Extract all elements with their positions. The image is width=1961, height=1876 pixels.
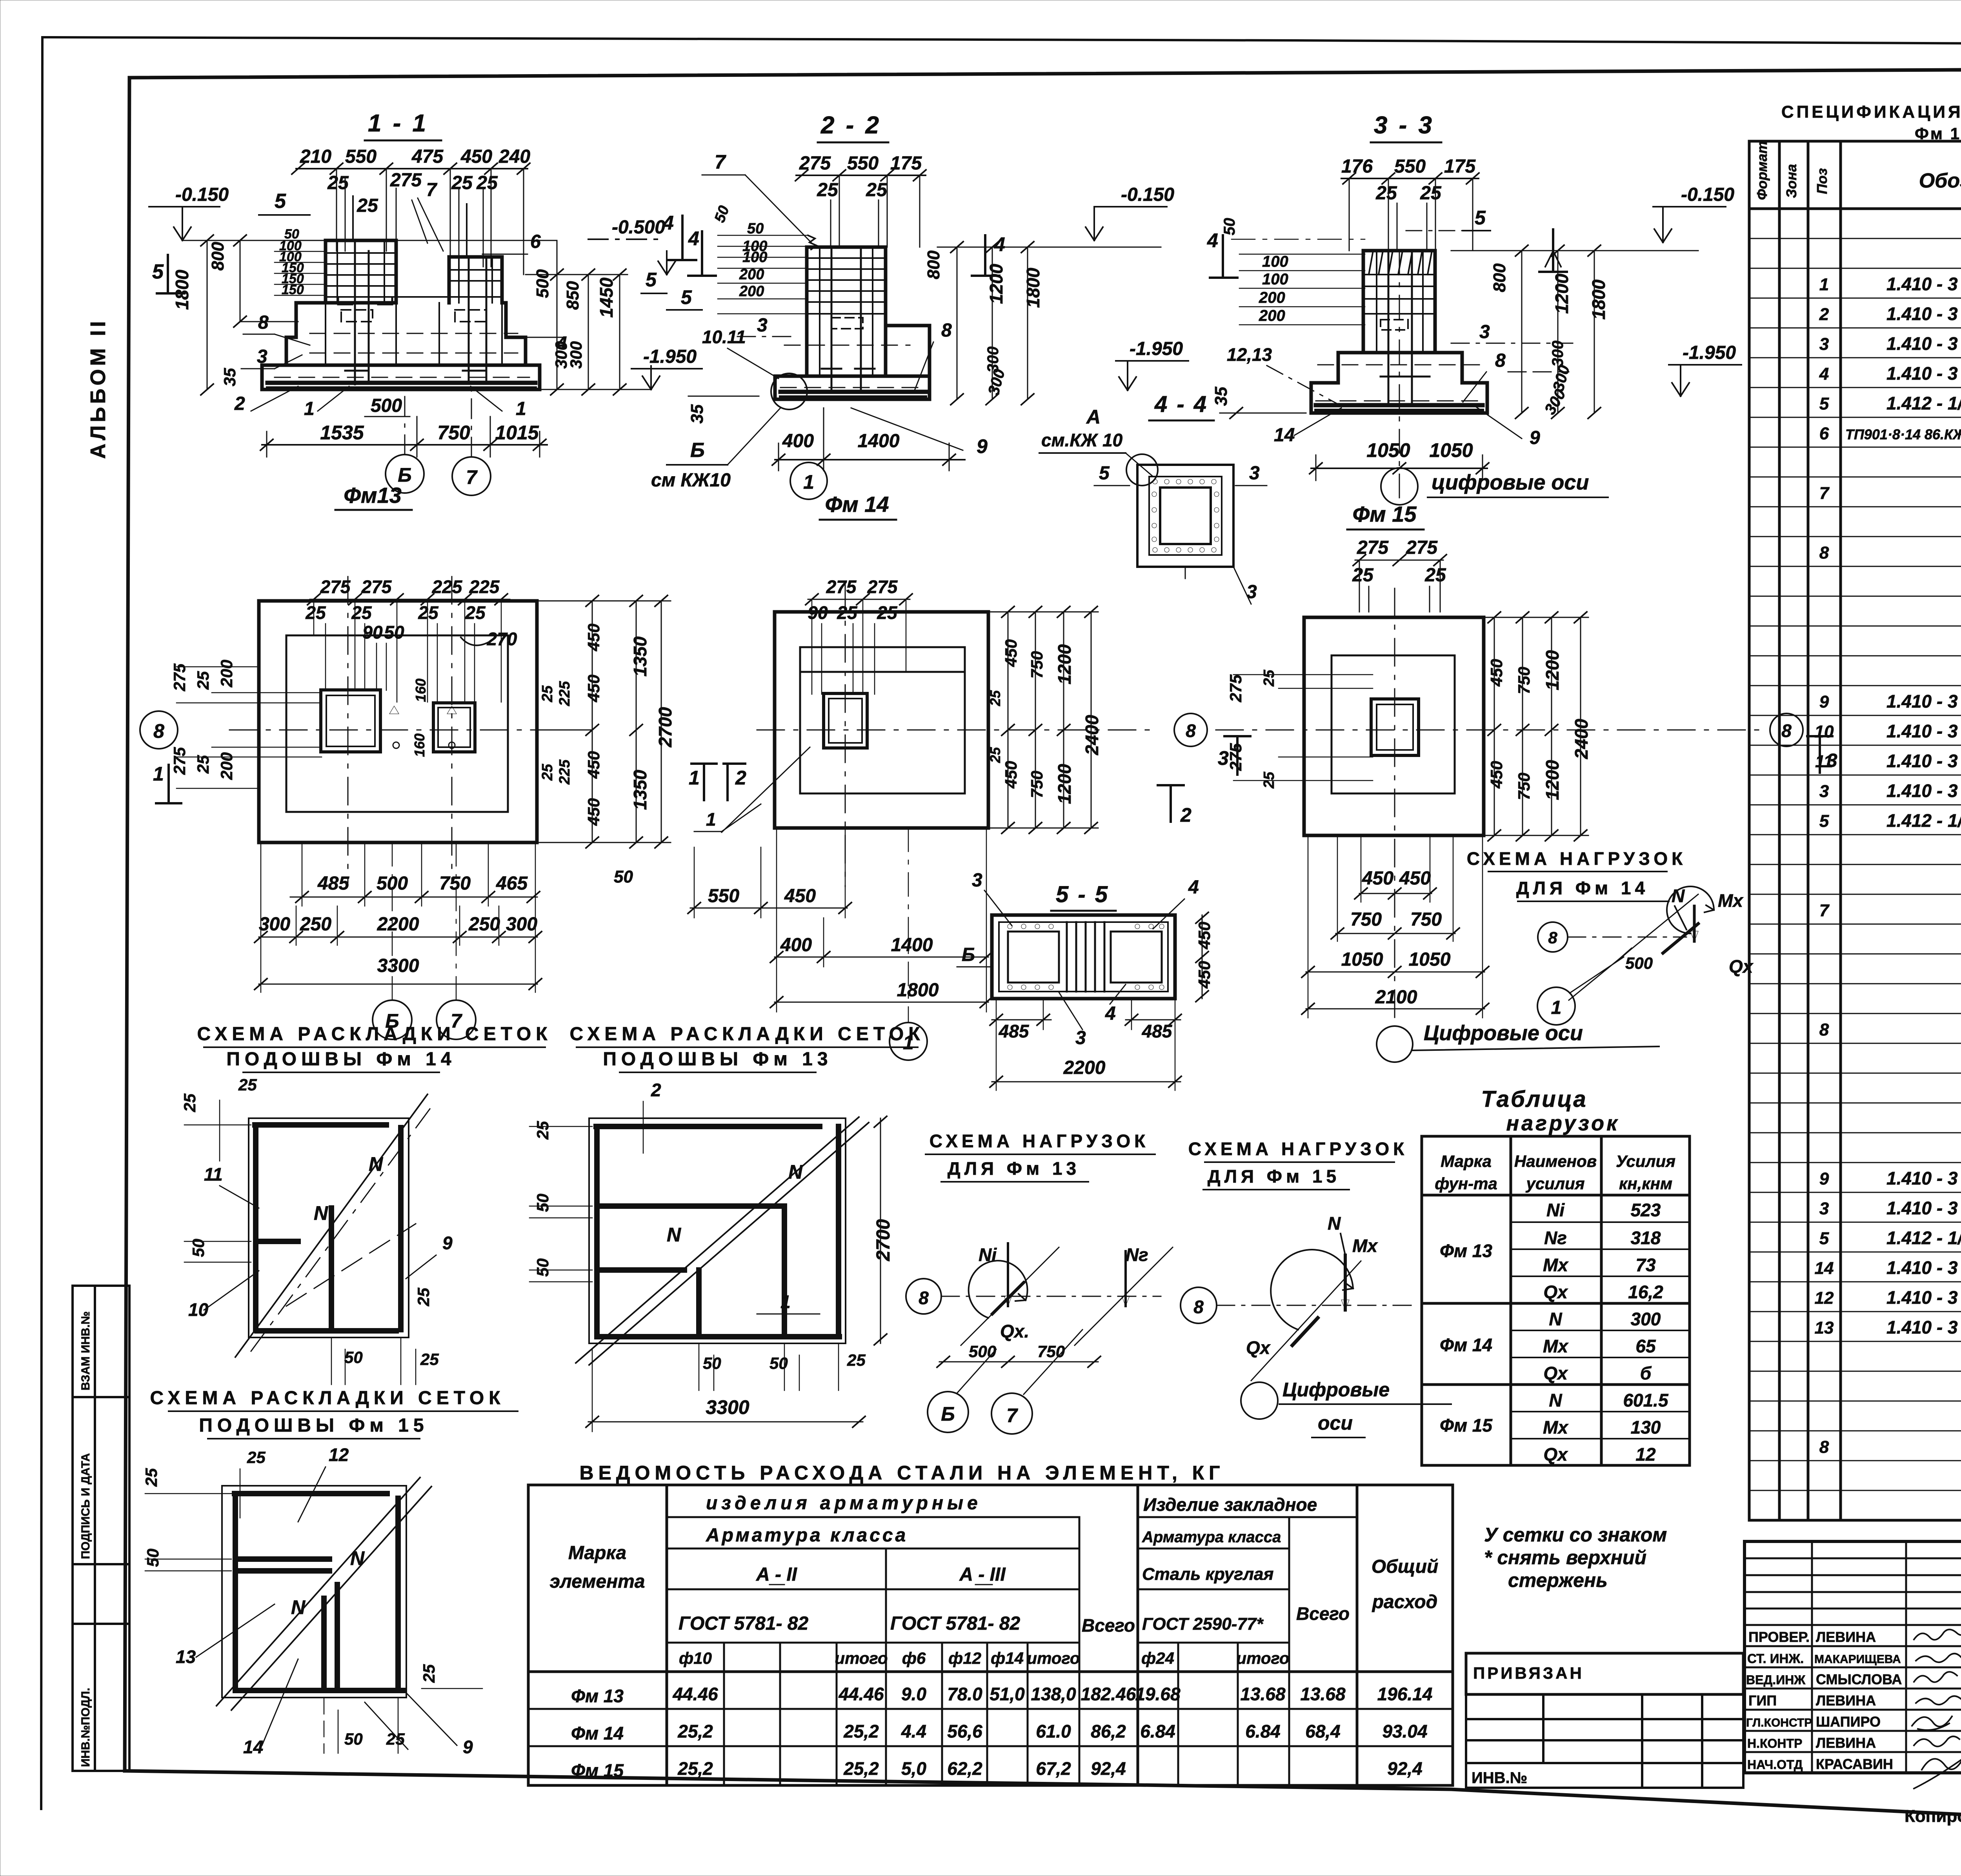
svg-text:3: 3 xyxy=(1819,335,1829,354)
svg-text:ДЛЯ Фм 15: ДЛЯ Фм 15 xyxy=(1208,1166,1340,1186)
svg-text:3: 3 xyxy=(1075,1028,1086,1048)
svg-text:750: 750 xyxy=(1028,771,1046,798)
svg-text:12: 12 xyxy=(1635,1444,1656,1465)
svg-text:50: 50 xyxy=(769,1354,788,1372)
svg-text:25: 25 xyxy=(238,1075,257,1094)
svg-text:3: 3 xyxy=(1479,322,1490,342)
svg-text:50: 50 xyxy=(533,1194,552,1212)
svg-text:Б: Б xyxy=(690,439,705,462)
svg-text:25: 25 xyxy=(877,602,898,623)
svg-text:Фм 15: Фм 15 xyxy=(1353,502,1417,526)
svg-text:8: 8 xyxy=(1819,1020,1829,1039)
svg-text:3: 3 xyxy=(972,870,982,891)
svg-text:90: 90 xyxy=(362,622,383,642)
svg-text:67,2: 67,2 xyxy=(1036,1758,1071,1779)
svg-text:7: 7 xyxy=(1819,484,1830,503)
svg-text:2: 2 xyxy=(651,1080,661,1100)
svg-text:25: 25 xyxy=(533,1121,552,1140)
svg-text:СХЕМА РАСКЛАДКИ СЕТОК: СХЕМА РАСКЛАДКИ СЕТОК xyxy=(197,1024,552,1044)
svg-text:4.4: 4.4 xyxy=(901,1721,926,1741)
svg-text:Марка: Марка xyxy=(568,1543,626,1563)
svg-text:25: 25 xyxy=(194,755,212,774)
svg-text:N: N xyxy=(291,1596,306,1618)
svg-text:ЛЕВИНА: ЛЕВИНА xyxy=(1816,1692,1876,1709)
svg-text:1200: 1200 xyxy=(1542,650,1563,690)
svg-text:225: 225 xyxy=(432,577,463,597)
svg-text:Усилия: Усилия xyxy=(1616,1152,1675,1170)
svg-text:КРАСАВИН: КРАСАВИН xyxy=(1816,1756,1893,1772)
svg-text:138,0: 138,0 xyxy=(1031,1684,1076,1704)
svg-text:СПЕЦИФИКАЦИЯ МОНОЛИТНЫХ ФУНДАМ: СПЕЦИФИКАЦИЯ МОНОЛИТНЫХ ФУНДАМЕНТОВ xyxy=(1781,102,1961,122)
svg-text:1400: 1400 xyxy=(891,935,933,955)
svg-text:1400: 1400 xyxy=(858,431,900,451)
svg-text:13: 13 xyxy=(1815,1318,1834,1337)
svg-text:3 - 3: 3 - 3 xyxy=(1374,112,1434,139)
svg-text:465: 465 xyxy=(496,873,528,894)
svg-text:ВЗАМ ИНВ.№: ВЗАМ ИНВ.№ xyxy=(79,1311,92,1390)
svg-text:6: 6 xyxy=(530,231,541,252)
svg-text:550: 550 xyxy=(1394,156,1426,177)
svg-text:А: А xyxy=(1086,406,1101,428)
svg-text:1450: 1450 xyxy=(596,277,617,318)
svg-text:7: 7 xyxy=(1006,1405,1018,1427)
svg-text:750: 750 xyxy=(1350,909,1382,930)
svg-text:12,13: 12,13 xyxy=(1227,344,1272,365)
svg-text:изделия арматурные: изделия арматурные xyxy=(706,1493,982,1514)
svg-text:2100: 2100 xyxy=(1375,987,1417,1008)
svg-text:25: 25 xyxy=(142,1468,160,1487)
svg-text:25: 25 xyxy=(451,173,473,193)
svg-text:3: 3 xyxy=(1819,782,1829,801)
svg-text:275: 275 xyxy=(390,170,422,191)
svg-text:475: 475 xyxy=(411,146,444,167)
svg-text:ГЛ.КОНСТР: ГЛ.КОНСТР xyxy=(1746,1716,1812,1729)
svg-text:Всего: Всего xyxy=(1296,1603,1350,1624)
svg-text:ГОСТ 5781- 82: ГОСТ 5781- 82 xyxy=(679,1613,808,1634)
svg-text:7: 7 xyxy=(426,180,438,200)
svg-text:13.68: 13.68 xyxy=(1240,1684,1286,1704)
svg-text:750: 750 xyxy=(1028,651,1046,679)
svg-text:1535: 1535 xyxy=(320,422,364,444)
svg-text:СХЕМА НАГРУЗОК: СХЕМА НАГРУЗОК xyxy=(930,1131,1149,1151)
svg-text:1: 1 xyxy=(780,1292,791,1312)
svg-text:175: 175 xyxy=(1444,156,1476,177)
svg-text:14: 14 xyxy=(1274,425,1295,446)
svg-text:100: 100 xyxy=(1262,253,1288,270)
svg-text:275: 275 xyxy=(1406,537,1438,558)
svg-text:10.11: 10.11 xyxy=(702,327,746,347)
svg-text:2700: 2700 xyxy=(655,707,675,748)
svg-text:160: 160 xyxy=(413,679,429,702)
svg-text:нагрузок: нагрузок xyxy=(1506,1112,1620,1135)
svg-text:1.410 - 3 Вып.1: 1.410 - 3 Вып.1 xyxy=(1886,1168,1961,1188)
svg-text:250: 250 xyxy=(468,914,500,935)
svg-text:4 - 4: 4 - 4 xyxy=(1154,391,1208,417)
svg-text:-1.950: -1.950 xyxy=(1683,342,1736,363)
svg-text:Мх: Мх xyxy=(1352,1236,1378,1256)
svg-text:601.5: 601.5 xyxy=(1623,1390,1669,1410)
svg-text:см КЖ10: см КЖ10 xyxy=(651,470,731,491)
svg-text:ПОДПИСЬ И ДАТА: ПОДПИСЬ И ДАТА xyxy=(79,1453,92,1559)
svg-text:12: 12 xyxy=(1815,1288,1834,1308)
svg-text:1.410 - 3 Вып.1: 1.410 - 3 Вып.1 xyxy=(1886,363,1961,384)
svg-text:750: 750 xyxy=(1515,773,1533,800)
svg-text:N: N xyxy=(369,1153,383,1175)
svg-text:Общий: Общий xyxy=(1372,1556,1439,1577)
svg-text:275: 275 xyxy=(826,577,857,597)
svg-text:523: 523 xyxy=(1631,1200,1661,1220)
svg-text:Фм 14: Фм 14 xyxy=(1440,1335,1492,1355)
svg-text:450: 450 xyxy=(1002,761,1020,789)
svg-text:ГОСТ 2590-77*: ГОСТ 2590-77* xyxy=(1142,1614,1264,1634)
svg-text:160: 160 xyxy=(411,733,427,757)
svg-text:1.410 - 3 Вып.1: 1.410 - 3 Вып.1 xyxy=(1886,751,1961,771)
svg-text:61.0: 61.0 xyxy=(1036,1721,1071,1741)
svg-text:25,2: 25,2 xyxy=(843,1758,879,1779)
svg-text:25: 25 xyxy=(539,685,556,702)
svg-text:СМЫСЛОВА: СМЫСЛОВА xyxy=(1816,1671,1902,1687)
svg-text:12: 12 xyxy=(329,1445,349,1465)
svg-text:4: 4 xyxy=(688,227,699,249)
svg-text:Фм13: Фм13 xyxy=(344,483,401,508)
svg-text:Сталь круглая: Сталь круглая xyxy=(1142,1565,1273,1584)
svg-text:6.84: 6.84 xyxy=(1140,1721,1175,1741)
svg-text:-1.950: -1.950 xyxy=(643,346,697,367)
svg-text:92,4: 92,4 xyxy=(1387,1758,1423,1779)
svg-text:НАЧ.ОТД: НАЧ.ОТД xyxy=(1747,1758,1803,1772)
svg-text:б: б xyxy=(1640,1363,1652,1383)
svg-text:750: 750 xyxy=(437,422,470,444)
svg-text:ПРОВЕР.: ПРОВЕР. xyxy=(1748,1629,1810,1645)
svg-text:11: 11 xyxy=(1815,752,1833,771)
svg-text:Qх: Qх xyxy=(1543,1444,1568,1465)
svg-text:275: 275 xyxy=(320,577,351,597)
svg-text:73: 73 xyxy=(1635,1255,1656,1275)
svg-text:СХЕМА РАСКЛАДКИ СЕТОК: СХЕМА РАСКЛАДКИ СЕТОК xyxy=(570,1024,925,1044)
svg-text:5: 5 xyxy=(1819,394,1829,413)
svg-text:25: 25 xyxy=(1375,183,1397,204)
svg-text:ЛЕВИНА: ЛЕВИНА xyxy=(1816,1629,1876,1645)
svg-text:кн,кнм: кн,кнм xyxy=(1619,1174,1672,1193)
svg-text:92,4: 92,4 xyxy=(1091,1758,1126,1779)
svg-text:485: 485 xyxy=(317,873,349,894)
svg-text:25: 25 xyxy=(1261,670,1277,687)
svg-text:Н.КОНТР: Н.КОНТР xyxy=(1747,1736,1802,1750)
svg-text:1800: 1800 xyxy=(1588,279,1609,320)
svg-text:Мх: Мх xyxy=(1543,1255,1569,1275)
svg-text:25: 25 xyxy=(414,1288,433,1306)
svg-text:500: 500 xyxy=(533,269,552,298)
svg-text:-0.150: -0.150 xyxy=(175,184,229,205)
svg-text:19.68: 19.68 xyxy=(1135,1684,1181,1704)
svg-text:200: 200 xyxy=(1259,307,1285,324)
svg-text:СХЕМА НАГРУЗОК: СХЕМА НАГРУЗОК xyxy=(1467,848,1686,869)
svg-text:750: 750 xyxy=(439,873,471,894)
svg-text:9: 9 xyxy=(1530,428,1540,448)
svg-text:1: 1 xyxy=(803,471,814,493)
svg-text:225: 225 xyxy=(469,577,500,597)
svg-text:-0.150: -0.150 xyxy=(1121,184,1174,205)
svg-text:7: 7 xyxy=(466,466,478,488)
svg-text:1.410 - 3 Вып.1: 1.410 - 3 Вып.1 xyxy=(1886,1317,1961,1337)
svg-text:Арматура класса: Арматура класса xyxy=(706,1525,908,1546)
svg-text:ДЛЯ Фм 13: ДЛЯ Фм 13 xyxy=(948,1158,1080,1179)
svg-text:450: 450 xyxy=(1487,761,1506,789)
svg-text:450: 450 xyxy=(584,624,603,651)
svg-text:ф24: ф24 xyxy=(1141,1649,1174,1667)
svg-text:8: 8 xyxy=(1819,1437,1829,1457)
svg-text:450: 450 xyxy=(584,798,603,826)
svg-text:1: 1 xyxy=(1551,997,1562,1018)
svg-text:1800: 1800 xyxy=(172,269,192,310)
svg-text:750: 750 xyxy=(1037,1342,1065,1361)
svg-text:7: 7 xyxy=(715,151,726,173)
svg-text:200: 200 xyxy=(739,283,764,300)
svg-text:Наименов: Наименов xyxy=(1514,1152,1597,1170)
svg-text:25: 25 xyxy=(351,602,372,623)
svg-text:8: 8 xyxy=(258,312,269,333)
svg-text:Марка: Марка xyxy=(1441,1152,1492,1170)
svg-text:1.410 - 3 Вып.1: 1.410 - 3 Вып.1 xyxy=(1886,304,1961,324)
svg-text:СТ. ИНЖ.: СТ. ИНЖ. xyxy=(1747,1651,1804,1666)
svg-text:Таблица: Таблица xyxy=(1481,1086,1587,1112)
svg-text:Б: Б xyxy=(941,1403,955,1425)
svg-text:N: N xyxy=(1672,886,1685,906)
svg-text:200: 200 xyxy=(739,266,764,283)
svg-text:9: 9 xyxy=(1819,1169,1829,1188)
svg-text:4: 4 xyxy=(1207,229,1218,251)
svg-text:1050: 1050 xyxy=(1409,949,1451,970)
svg-text:16,2: 16,2 xyxy=(1628,1282,1663,1302)
svg-text:25,2: 25,2 xyxy=(677,1721,713,1741)
svg-text:25: 25 xyxy=(866,180,888,200)
svg-text:Nг: Nг xyxy=(1126,1245,1148,1265)
svg-text:4: 4 xyxy=(1188,877,1199,898)
svg-text:200: 200 xyxy=(217,752,236,780)
svg-text:8: 8 xyxy=(941,320,952,341)
svg-text:8: 8 xyxy=(919,1288,929,1308)
svg-text:850: 850 xyxy=(563,281,582,310)
svg-text:78.0: 78.0 xyxy=(947,1684,982,1704)
svg-text:1: 1 xyxy=(1819,275,1829,294)
svg-text:500: 500 xyxy=(371,395,402,416)
svg-text:стержень: стержень xyxy=(1508,1569,1608,1591)
svg-text:1.410 - 3 Вып.1: 1.410 - 3 Вып.1 xyxy=(1886,1198,1961,1218)
svg-text:1: 1 xyxy=(706,809,716,830)
svg-text:275: 275 xyxy=(799,153,831,174)
svg-text:1050: 1050 xyxy=(1366,439,1410,461)
svg-text:1.410 - 3 Вып.1: 1.410 - 3 Вып.1 xyxy=(1886,1257,1961,1278)
svg-text:3: 3 xyxy=(257,346,267,367)
svg-text:182.46: 182.46 xyxy=(1081,1684,1136,1704)
svg-text:500: 500 xyxy=(1625,954,1653,972)
svg-text:25: 25 xyxy=(194,671,212,690)
svg-text:У сетки со знаком: У сетки со знаком xyxy=(1484,1524,1667,1546)
svg-text:44.46: 44.46 xyxy=(838,1684,884,1704)
svg-text:ф12: ф12 xyxy=(948,1649,981,1667)
svg-text:ИНВ.№: ИНВ.№ xyxy=(1472,1769,1527,1787)
svg-text:2200: 2200 xyxy=(377,914,419,935)
svg-text:1: 1 xyxy=(689,767,700,789)
svg-text:3: 3 xyxy=(1249,463,1260,484)
svg-text:5: 5 xyxy=(275,190,286,213)
svg-text:4: 4 xyxy=(662,212,674,234)
svg-text:25: 25 xyxy=(305,602,326,623)
svg-text:Nі: Nі xyxy=(1546,1200,1565,1220)
svg-text:25: 25 xyxy=(476,173,498,193)
svg-text:5: 5 xyxy=(681,286,692,308)
svg-text:25: 25 xyxy=(837,602,858,623)
svg-text:Изделие закладное: Изделие закладное xyxy=(1143,1494,1317,1515)
svg-text:5: 5 xyxy=(1819,812,1829,831)
svg-text:25: 25 xyxy=(539,764,556,781)
svg-text:550: 550 xyxy=(708,886,739,906)
svg-text:1350: 1350 xyxy=(630,770,650,810)
svg-text:усилия: усилия xyxy=(1526,1174,1585,1193)
svg-text:Фм 13: Фм 13 xyxy=(571,1686,624,1706)
svg-text:270: 270 xyxy=(487,629,517,649)
svg-text:800: 800 xyxy=(1490,263,1509,292)
svg-text:элемента: элемента xyxy=(550,1571,645,1592)
svg-text:318: 318 xyxy=(1631,1228,1661,1248)
svg-text:6.84: 6.84 xyxy=(1245,1721,1281,1741)
svg-text:1.412 - 1/77 Вып.3: 1.412 - 1/77 Вып.3 xyxy=(1886,1228,1961,1248)
svg-text:ГОСТ 5781- 82: ГОСТ 5781- 82 xyxy=(890,1613,1020,1634)
svg-text:Арматура класса: Арматура класса xyxy=(1142,1528,1281,1546)
svg-text:1 - 1: 1 - 1 xyxy=(368,110,428,137)
svg-text:8: 8 xyxy=(1819,543,1829,562)
svg-text:5 - 5: 5 - 5 xyxy=(1056,882,1109,907)
svg-text:Фм 14: Фм 14 xyxy=(825,492,889,517)
svg-text:1200: 1200 xyxy=(986,264,1006,304)
svg-text:200: 200 xyxy=(217,660,236,688)
svg-text:3300: 3300 xyxy=(706,1396,749,1418)
svg-text:N: N xyxy=(1549,1390,1562,1410)
svg-text:1: 1 xyxy=(153,763,164,785)
svg-text:25: 25 xyxy=(817,180,839,200)
svg-text:ДЛЯ Фм 14: ДЛЯ Фм 14 xyxy=(1516,878,1649,898)
svg-text:фун-та: фун-та xyxy=(1435,1174,1497,1193)
svg-text:-0.150: -0.150 xyxy=(1681,184,1734,205)
svg-text:485: 485 xyxy=(1142,1021,1173,1041)
svg-text:1.410 - 3 Вып.1: 1.410 - 3 Вып.1 xyxy=(1886,691,1961,711)
svg-text:Фм 14: Фм 14 xyxy=(571,1723,624,1743)
svg-text:50: 50 xyxy=(1221,218,1238,236)
svg-text:450: 450 xyxy=(460,146,492,167)
svg-text:485: 485 xyxy=(999,1021,1030,1041)
svg-text:750: 750 xyxy=(1410,909,1442,930)
svg-text:450: 450 xyxy=(1487,659,1506,687)
svg-text:1.410 - 3 Вып.1: 1.410 - 3 Вып.1 xyxy=(1886,333,1961,354)
svg-text:1.410 - 3 Вып.1: 1.410 - 3 Вып.1 xyxy=(1886,274,1961,294)
svg-text:Фм 15: Фм 15 xyxy=(571,1760,624,1781)
svg-text:9: 9 xyxy=(463,1737,473,1757)
svg-text:итого: итого xyxy=(1027,1649,1080,1667)
svg-text:250: 250 xyxy=(300,914,331,935)
svg-text:25: 25 xyxy=(420,1350,439,1368)
svg-text:ф6: ф6 xyxy=(902,1649,926,1667)
svg-text:1.412 - 1/77 Вып.3: 1.412 - 1/77 Вып.3 xyxy=(1886,810,1961,831)
svg-text:Формат: Формат xyxy=(1754,141,1770,200)
svg-text:1200: 1200 xyxy=(1552,273,1572,314)
svg-text:см.КЖ 10: см.КЖ 10 xyxy=(1041,430,1123,450)
svg-text:25,2: 25,2 xyxy=(843,1721,879,1741)
svg-text:225: 225 xyxy=(557,759,573,785)
svg-text:25: 25 xyxy=(987,690,1003,706)
svg-text:50: 50 xyxy=(747,220,764,237)
svg-text:275: 275 xyxy=(170,663,189,691)
svg-text:ТП901·8·14 86.КЖИ. 100.00.04: ТП901·8·14 86.КЖИ. 100.00.04 xyxy=(1845,426,1961,442)
svg-text:9.0: 9.0 xyxy=(901,1684,926,1704)
svg-text:3: 3 xyxy=(757,315,768,336)
svg-text:Б: Б xyxy=(962,944,975,965)
svg-text:итого: итого xyxy=(835,1649,888,1667)
svg-text:450: 450 xyxy=(1195,922,1213,950)
svg-text:Qх: Qх xyxy=(1543,1363,1568,1383)
svg-text:86,2: 86,2 xyxy=(1091,1721,1126,1741)
svg-text:N: N xyxy=(1549,1309,1562,1329)
svg-text:1050: 1050 xyxy=(1341,949,1383,970)
svg-text:25: 25 xyxy=(1352,565,1374,586)
svg-text:5: 5 xyxy=(1475,207,1486,229)
svg-text:ИНВ.№ПОДЛ.: ИНВ.№ПОДЛ. xyxy=(79,1688,92,1767)
svg-text:8: 8 xyxy=(153,720,164,742)
svg-text:450: 450 xyxy=(584,751,603,779)
svg-text:11: 11 xyxy=(204,1164,223,1185)
svg-text:1.410 - 3 Вып.1: 1.410 - 3 Вып.1 xyxy=(1886,721,1961,741)
svg-text:2: 2 xyxy=(735,767,746,789)
svg-text:300: 300 xyxy=(567,341,585,369)
svg-text:35: 35 xyxy=(220,368,239,386)
svg-text:275: 275 xyxy=(1226,743,1245,771)
svg-text:50: 50 xyxy=(711,204,733,225)
svg-text:25: 25 xyxy=(1424,565,1446,586)
svg-text:1800: 1800 xyxy=(1023,267,1043,308)
svg-text:Qх.: Qх. xyxy=(1000,1321,1029,1341)
svg-text:5,0: 5,0 xyxy=(901,1758,926,1779)
svg-text:300: 300 xyxy=(1631,1309,1661,1329)
svg-text:ф14: ф14 xyxy=(991,1649,1024,1667)
svg-text:8: 8 xyxy=(1193,1297,1204,1317)
svg-text:ф10: ф10 xyxy=(679,1649,712,1667)
svg-text:цифровые оси: цифровые оси xyxy=(1432,471,1589,494)
svg-text:10: 10 xyxy=(1815,722,1834,741)
svg-text:СХЕМА РАСКЛАДКИ СЕТОК: СХЕМА РАСКЛАДКИ СЕТОК xyxy=(150,1388,505,1408)
svg-text:25: 25 xyxy=(987,747,1003,763)
svg-text:1200: 1200 xyxy=(1542,760,1563,800)
svg-text:35: 35 xyxy=(688,404,707,424)
svg-text:* снять верхний: * снять верхний xyxy=(1484,1547,1646,1568)
svg-text:275: 275 xyxy=(1226,674,1245,702)
svg-text:Мх: Мх xyxy=(1718,890,1744,911)
svg-text:Копировал: Коршунова: Копировал: Коршунова xyxy=(1905,1807,1961,1826)
svg-text:25: 25 xyxy=(247,1448,266,1467)
svg-text:1200: 1200 xyxy=(1054,644,1075,684)
svg-text:6: 6 xyxy=(1819,424,1829,443)
svg-text:Qх: Qх xyxy=(1246,1337,1271,1358)
svg-text:9: 9 xyxy=(977,435,988,457)
svg-text:750: 750 xyxy=(1515,667,1533,694)
svg-text:25: 25 xyxy=(180,1094,199,1112)
svg-text:расход: расход xyxy=(1372,1592,1438,1612)
svg-text:65: 65 xyxy=(1635,1336,1656,1356)
svg-text:3: 3 xyxy=(1819,1199,1829,1218)
svg-text:25: 25 xyxy=(420,1664,438,1683)
svg-text:450: 450 xyxy=(1362,868,1393,889)
svg-text:Qх: Qх xyxy=(1543,1282,1568,1302)
svg-text:196.14: 196.14 xyxy=(1377,1684,1433,1704)
svg-text:50: 50 xyxy=(384,622,404,642)
